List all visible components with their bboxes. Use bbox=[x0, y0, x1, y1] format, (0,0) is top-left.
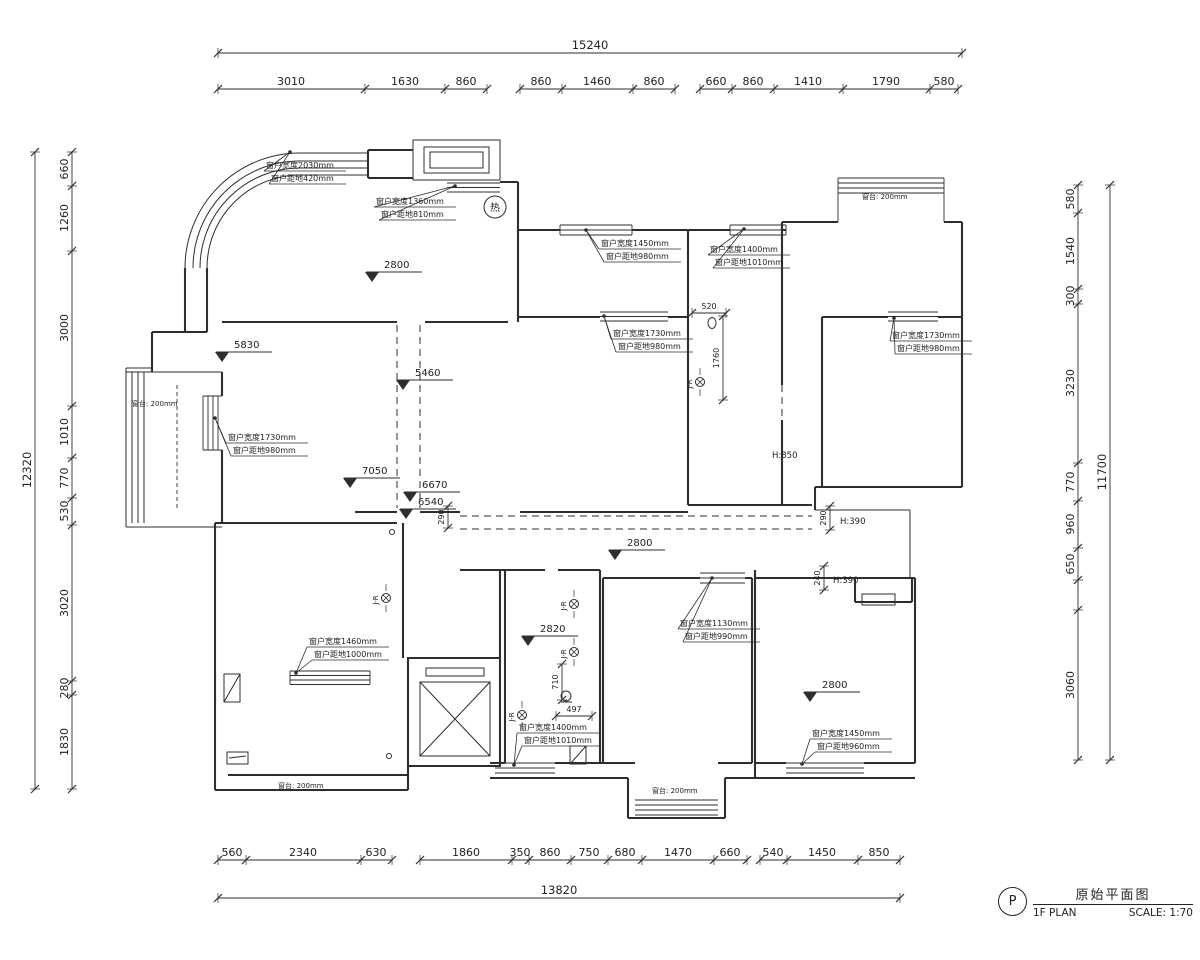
annotation-arrow-icon bbox=[602, 314, 606, 318]
plumbing-marker-label: J-R bbox=[372, 595, 380, 605]
level-triangle-icon bbox=[365, 272, 379, 282]
dimension-value: 1260 bbox=[58, 204, 71, 232]
window-annotation-line2: 窗户距地420mm bbox=[271, 173, 334, 183]
dimension-value: 680 bbox=[615, 846, 636, 859]
level-triangle-icon bbox=[608, 550, 622, 560]
dimension-value: 300 bbox=[1064, 286, 1077, 307]
hot-water-symbol-label: 热 bbox=[490, 201, 500, 214]
annotation-arrow-icon bbox=[512, 763, 516, 767]
dimension-value: 290 bbox=[437, 509, 446, 524]
window-annotation-line2: 窗户距地810mm bbox=[381, 209, 444, 219]
dimension-value: 11700 bbox=[1095, 454, 1109, 491]
dimension-value: 860 bbox=[456, 75, 477, 88]
level-triangle-icon bbox=[215, 352, 229, 362]
dimension-value: 3060 bbox=[1064, 671, 1077, 699]
dimension-value: 12320 bbox=[20, 452, 34, 489]
dimension-value: 1470 bbox=[664, 846, 692, 859]
dimension-value: 850 bbox=[869, 846, 890, 859]
window-annotation-line2: 窗户距地980mm bbox=[606, 251, 669, 261]
window-annotation-line1: 窗户宽度1450mm bbox=[812, 728, 880, 738]
window-annotation-line2: 窗户距地980mm bbox=[233, 445, 296, 455]
plan-subtitle: 1F PLAN bbox=[1033, 907, 1077, 919]
dashed-openings bbox=[397, 325, 812, 529]
level-triangle-icon bbox=[399, 509, 413, 519]
dimension-value: 1630 bbox=[391, 75, 419, 88]
level-triangle-icon bbox=[343, 478, 357, 488]
dimension-value: 3020 bbox=[58, 589, 71, 617]
window-annotation-line2: 窗户距地1010mm bbox=[524, 735, 592, 745]
dimension-value: 3000 bbox=[58, 314, 71, 342]
annotation-arrow-icon bbox=[892, 316, 896, 320]
window-annotation-line1: 窗户宽度1400mm bbox=[710, 244, 778, 254]
dimension-value: 1760 bbox=[712, 348, 721, 368]
dimension-value: 860 bbox=[531, 75, 552, 88]
plan-tag-circle: P bbox=[998, 887, 1027, 916]
dimension-value: 860 bbox=[743, 75, 764, 88]
annotation-arrow-icon bbox=[584, 228, 588, 232]
window-annotation-line2: 窗户距地980mm bbox=[618, 341, 681, 351]
level-triangle-icon bbox=[521, 636, 535, 646]
window-bands bbox=[203, 178, 944, 815]
window-annotation-line1: 窗户宽度1730mm bbox=[228, 432, 296, 442]
annotation-leader bbox=[514, 733, 517, 765]
dimension-value: 2340 bbox=[289, 846, 317, 859]
annotation-arrow-icon bbox=[742, 227, 746, 231]
dimension-value: 860 bbox=[540, 846, 561, 859]
dimension-value: 1830 bbox=[58, 728, 71, 756]
height-label: H:390 bbox=[833, 576, 858, 586]
dimension-value: 240 bbox=[813, 570, 822, 585]
level-value: 5460 bbox=[415, 368, 440, 379]
window-annotation-line1: 窗户宽度1450mm bbox=[601, 238, 669, 248]
height-label: H:850 bbox=[772, 451, 797, 461]
level-value: 7050 bbox=[362, 466, 387, 477]
window-annotation-line2: 窗户距地960mm bbox=[817, 741, 880, 751]
dimension-value: 530 bbox=[58, 501, 71, 522]
floorplan-drawing: 1524030101630860860146086066086014101790… bbox=[0, 0, 1200, 960]
window-annotation-line1: 窗户宽度1730mm bbox=[613, 328, 681, 338]
dimension-value: 280 bbox=[58, 678, 71, 699]
level-triangle-icon bbox=[403, 492, 417, 502]
dimension-value: 770 bbox=[58, 468, 71, 489]
dimension-value: 650 bbox=[1064, 554, 1077, 575]
annotation-leader bbox=[296, 647, 307, 673]
dimension-value: 660 bbox=[58, 159, 71, 180]
window-annotation-line2: 窗户距地990mm bbox=[685, 631, 748, 641]
dimension-value: 580 bbox=[1064, 189, 1077, 210]
plumbing-marker-label: J-R bbox=[560, 649, 568, 659]
dimension-value: 630 bbox=[366, 846, 387, 859]
annotation-arrow-icon bbox=[294, 671, 298, 675]
annotation-arrow-icon bbox=[213, 416, 217, 420]
dimension-value: 560 bbox=[222, 846, 243, 859]
window-annotation-line2: 窗户距地1000mm bbox=[314, 649, 382, 659]
plumbing-marker-label: J-R bbox=[508, 712, 516, 722]
level-value: 6540 bbox=[418, 497, 443, 508]
dimension-value: 497 bbox=[566, 705, 581, 714]
sill-label: 窗台: 200mm bbox=[862, 192, 908, 201]
sill-label: 窗台: 200mm bbox=[278, 781, 324, 790]
plan-tag-letter: P bbox=[1009, 894, 1017, 909]
annotation-arrow-icon bbox=[710, 576, 714, 580]
dimension-value: 290 bbox=[819, 510, 828, 525]
dimension-value: 580 bbox=[934, 75, 955, 88]
dimension-value: 1790 bbox=[872, 75, 900, 88]
dimension-value: 520 bbox=[701, 302, 716, 311]
level-value: 2800 bbox=[384, 260, 409, 271]
level-value: 5830 bbox=[234, 340, 259, 351]
dimension-value: 860 bbox=[644, 75, 665, 88]
dimension-value: 540 bbox=[763, 846, 784, 859]
annotation-leader bbox=[894, 318, 895, 354]
level-value: 6670 bbox=[422, 480, 447, 491]
floorplan-page: 1524030101630860860146086066086014101790… bbox=[0, 0, 1200, 960]
dimension-value: 350 bbox=[510, 846, 531, 859]
dimension-value: 660 bbox=[706, 75, 727, 88]
dimension-value: 1450 bbox=[808, 846, 836, 859]
dimension-value: 13820 bbox=[541, 883, 578, 897]
annotation-arrow-icon bbox=[288, 150, 292, 154]
flue-box bbox=[413, 140, 500, 180]
dimension-value: 3230 bbox=[1064, 369, 1077, 397]
level-value: 2800 bbox=[627, 538, 652, 549]
window-annotation-line1: 窗户宽度2030mm bbox=[266, 160, 334, 170]
dimension-value: 710 bbox=[551, 674, 560, 689]
level-value: 2820 bbox=[540, 624, 565, 635]
level-triangle-icon bbox=[803, 692, 817, 702]
title-block-text: 原始平面图 1F PLAN SCALE: 1:70 bbox=[1033, 884, 1193, 919]
dimension-value: 1010 bbox=[58, 418, 71, 446]
elevator bbox=[408, 658, 500, 766]
dimension-value: 660 bbox=[720, 846, 741, 859]
dimension-value: 1410 bbox=[794, 75, 822, 88]
title-block: P 原始平面图 1F PLAN SCALE: 1:70 bbox=[998, 884, 1193, 919]
dimension-value: 1460 bbox=[583, 75, 611, 88]
plan-title: 原始平面图 bbox=[1033, 884, 1193, 905]
sill-label: 窗台: 200mm bbox=[652, 786, 698, 795]
plan-scale: SCALE: 1:70 bbox=[1129, 907, 1193, 919]
dimension-value: 15240 bbox=[572, 38, 609, 52]
height-label: H:390 bbox=[840, 517, 865, 527]
window-annotation-line1: 窗户宽度1400mm bbox=[519, 722, 587, 732]
dimension-value: 1540 bbox=[1064, 237, 1077, 265]
level-value: 2800 bbox=[822, 680, 847, 691]
generated-text-layer: 1524030101630860860146086066086014101790… bbox=[20, 38, 1115, 903]
window-annotation-line2: 窗户距地1010mm bbox=[715, 257, 783, 267]
walls-structural bbox=[152, 150, 962, 818]
annotation-arrow-icon bbox=[800, 762, 804, 766]
sill-label: 窗台: 200mm bbox=[132, 399, 178, 408]
doors-and-fixtures bbox=[224, 318, 895, 765]
bay-window-arcs bbox=[185, 153, 368, 268]
annotation-arrow-icon bbox=[453, 184, 457, 188]
window-annotation-line1: 窗户宽度1460mm bbox=[309, 636, 377, 646]
dimension-value: 960 bbox=[1064, 514, 1077, 535]
plumbing-marker-label: J-R bbox=[560, 601, 568, 611]
dimension-value: 3010 bbox=[277, 75, 305, 88]
dimension-value: 1860 bbox=[452, 846, 480, 859]
level-triangle-icon bbox=[396, 380, 410, 390]
window-annotation-line1: 窗户宽度1730mm bbox=[892, 330, 960, 340]
dimension-value: 750 bbox=[579, 846, 600, 859]
window-annotation-line2: 窗户距地980mm bbox=[897, 343, 960, 353]
plumbing-marker-label: J-R bbox=[686, 379, 694, 389]
dimension-value: 770 bbox=[1064, 472, 1077, 493]
